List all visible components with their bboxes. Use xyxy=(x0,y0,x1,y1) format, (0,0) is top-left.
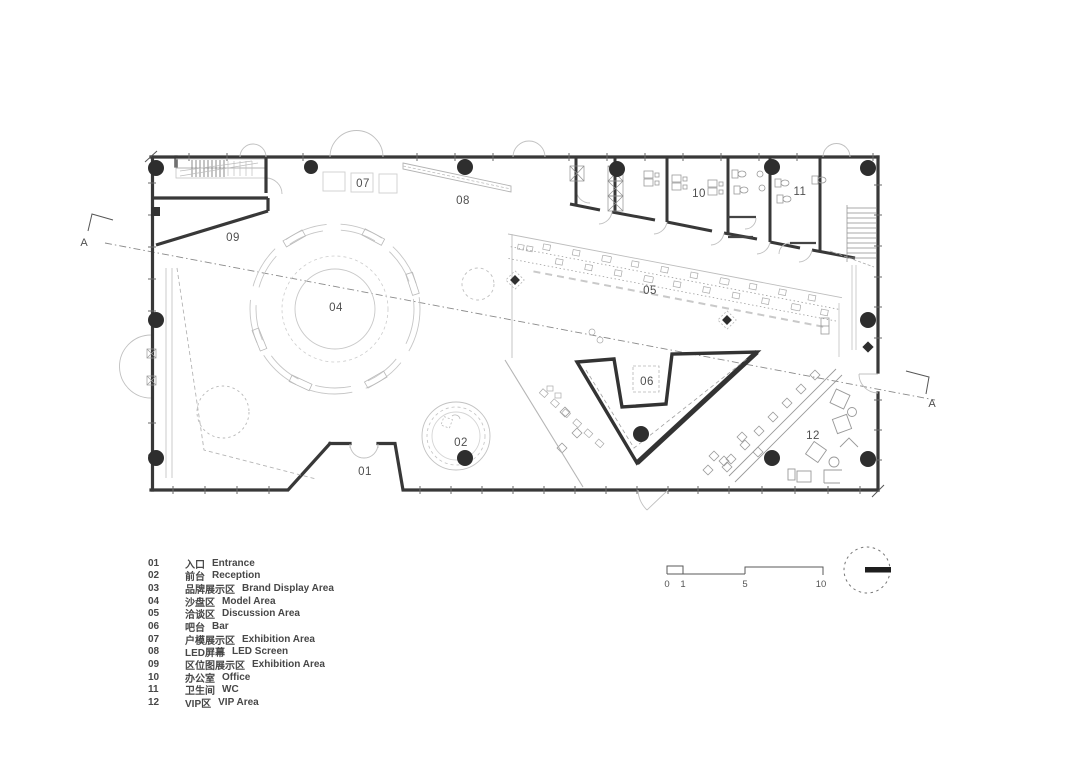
scale-label-10: 10 xyxy=(816,579,827,590)
north-symbol xyxy=(844,547,891,593)
room-label-07: 07 xyxy=(356,178,370,190)
legend-item: 11卫生间WC xyxy=(148,683,334,696)
legend-item-en: Exhibition Area xyxy=(242,634,315,645)
legend-item-number: 06 xyxy=(148,621,185,632)
room-label-02: 02 xyxy=(454,437,468,449)
room-label-06: 06 xyxy=(640,376,654,388)
legend-item-en: Office xyxy=(222,672,250,683)
legend-item-number: 11 xyxy=(148,684,185,695)
legend-item: 07户模展示区Exhibition Area xyxy=(148,633,334,646)
scale-label-5: 5 xyxy=(742,579,747,590)
discussion-band-05 xyxy=(502,234,842,358)
floor-markers xyxy=(506,271,874,353)
legend-item-number: 01 xyxy=(148,558,185,569)
legend: 01入口Entrance 02前台Reception 03品牌展示区Brand … xyxy=(148,557,334,709)
legend-item: 02前台Reception xyxy=(148,570,334,583)
round-display xyxy=(197,386,249,438)
scale-label-1: 1 xyxy=(680,579,685,590)
room-label-10: 10 xyxy=(692,188,706,200)
legend-item: 12VIP区VIP Area xyxy=(148,696,334,709)
room09-walls xyxy=(154,157,268,245)
room-label-09: 09 xyxy=(226,232,240,244)
room-label-01: 01 xyxy=(358,466,372,478)
legend-item-en: Model Area xyxy=(222,596,276,607)
legend-item-en: Discussion Area xyxy=(222,608,300,619)
legend-item-number: 12 xyxy=(148,697,185,708)
scale-label-0: 0 xyxy=(664,579,669,590)
legend-item-en: Brand Display Area xyxy=(242,583,334,594)
wc-interior-walls xyxy=(728,217,816,243)
led-screen-08 xyxy=(403,163,511,192)
legend-item-cn: VIP区 xyxy=(185,695,211,710)
vip-area-12 xyxy=(709,369,858,483)
legend-item-en: Entrance xyxy=(212,558,255,569)
bar-06 xyxy=(557,352,763,475)
legend-item-number: 09 xyxy=(148,659,185,670)
corner-break-marks xyxy=(145,151,884,497)
legend-item-en: LED Screen xyxy=(232,646,288,657)
scale-bar: 0 1 5 10 xyxy=(664,566,826,590)
wc-fixtures xyxy=(732,170,826,203)
legend-item-number: 03 xyxy=(148,583,185,594)
waiting-chairs-row xyxy=(505,329,604,487)
wall-pier xyxy=(151,207,160,216)
legend-item-en: VIP Area xyxy=(218,697,259,708)
legend-item-number: 04 xyxy=(148,596,185,607)
legend-item-en: WC xyxy=(222,684,239,695)
legend-item: 01入口Entrance xyxy=(148,557,334,570)
room-label-04: 04 xyxy=(329,302,343,314)
legend-item: 06吧台Bar xyxy=(148,620,334,633)
window-mullion-ticks xyxy=(148,153,882,494)
legend-item-en: Reception xyxy=(212,570,260,581)
section-line xyxy=(105,243,935,400)
stair-right xyxy=(830,205,876,350)
section-marker-right: A xyxy=(906,371,936,410)
north-needle xyxy=(865,567,891,573)
legend-item: 04沙盘区Model Area xyxy=(148,595,334,608)
legend-item: 03品牌展示区Brand Display Area xyxy=(148,582,334,595)
legend-item-en: Exhibition Area xyxy=(252,659,325,670)
stair-top-left xyxy=(176,159,266,178)
room-number-labels: 01 02 04 05 06 07 08 09 10 11 12 xyxy=(226,178,820,478)
vip-lounge-furniture xyxy=(788,389,858,483)
legend-item-number: 10 xyxy=(148,672,185,683)
room-label-11: 11 xyxy=(794,186,807,198)
legend-item-number: 02 xyxy=(148,570,185,581)
legend-item-number: 07 xyxy=(148,634,185,645)
legend-item: 05洽谈区Discussion Area xyxy=(148,608,334,621)
round-display-case xyxy=(462,268,494,300)
section-label-left: A xyxy=(80,237,88,249)
room-label-12: 12 xyxy=(806,430,820,442)
room-label-08: 08 xyxy=(456,195,470,207)
reception-02 xyxy=(422,402,490,470)
office-desks xyxy=(644,171,723,195)
legend-item-number: 08 xyxy=(148,646,185,657)
office-door-swings xyxy=(599,212,812,262)
legend-item: 10办公室Office xyxy=(148,671,334,684)
brand-display-strip xyxy=(147,268,316,479)
legend-item: 09区位图展示区Exhibition Area xyxy=(148,658,334,671)
room-label-05: 05 xyxy=(643,285,657,297)
floor-plan-page: { "colors": { "wall": "#383838", "thin_l… xyxy=(0,0,1080,764)
section-label-right: A xyxy=(928,398,936,410)
legend-item-en: Bar xyxy=(212,621,229,632)
legend-item-number: 05 xyxy=(148,608,185,619)
